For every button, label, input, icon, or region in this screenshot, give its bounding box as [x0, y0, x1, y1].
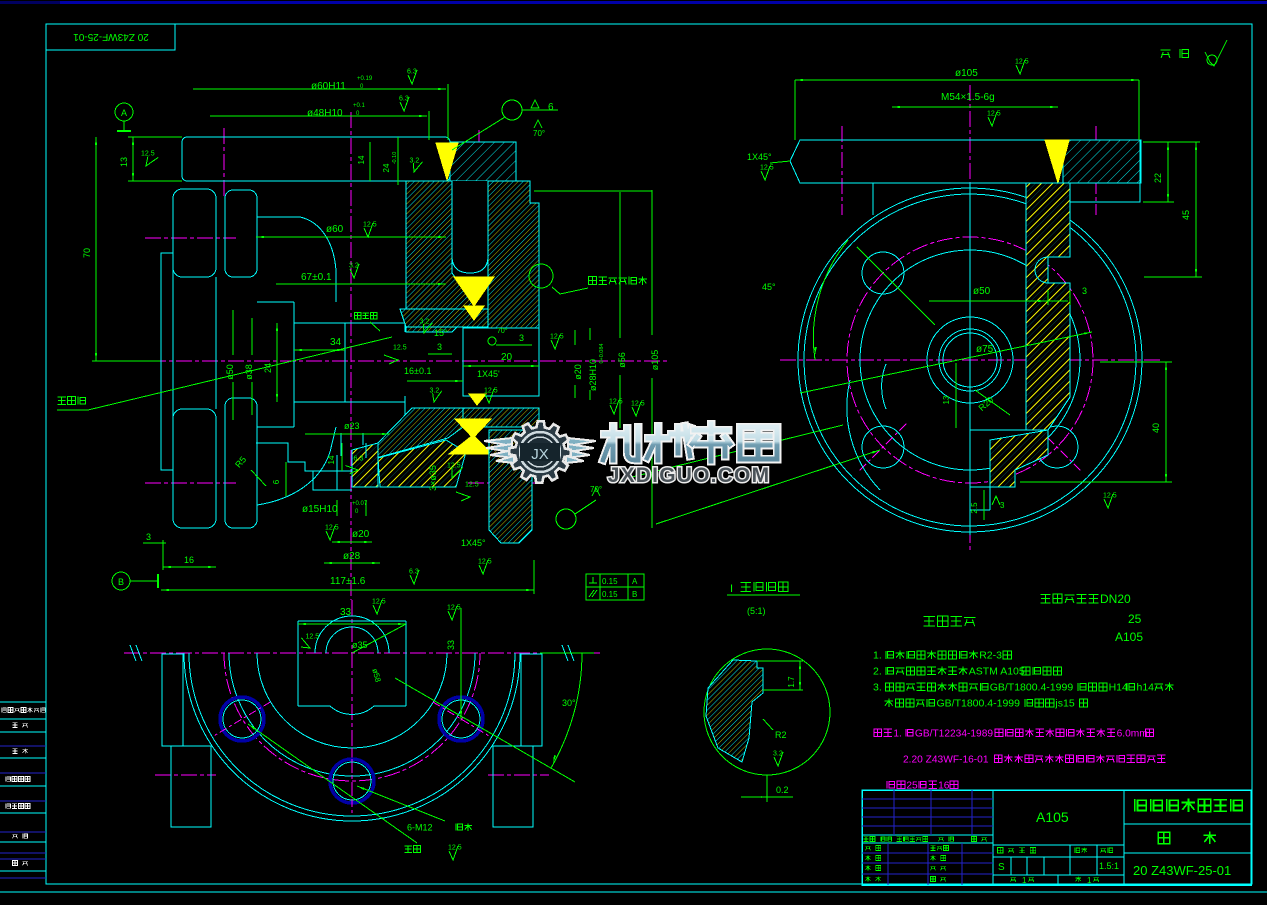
svg-text:14: 14 — [357, 155, 366, 164]
svg-text:16: 16 — [184, 555, 194, 565]
svg-text:15°: 15° — [434, 328, 448, 338]
svg-text:3: 3 — [519, 333, 524, 343]
svg-text:12.5: 12.5 — [550, 334, 564, 341]
svg-text:70°: 70° — [497, 327, 508, 335]
svg-text:JXDIGUO.COM: JXDIGUO.COM — [608, 464, 771, 487]
svg-text:12.5: 12.5 — [372, 599, 386, 606]
svg-text:20 Z43WF-25-01: 20 Z43WF-25-01 — [1133, 863, 1231, 878]
svg-text:40: 40 — [1151, 423, 1161, 433]
svg-text:12.5: 12.5 — [484, 388, 498, 395]
svg-text:A105: A105 — [1115, 630, 1143, 644]
svg-text:+0.084: +0.084 — [599, 344, 605, 361]
svg-text:14: 14 — [327, 455, 336, 464]
svg-text:GB/T12234-1989: GB/T12234-1989 — [915, 728, 993, 739]
svg-text:ø50: ø50 — [225, 364, 235, 380]
svg-text:6.3: 6.3 — [407, 69, 417, 76]
svg-text:js15: js15 — [1054, 698, 1074, 710]
svg-text:6: 6 — [272, 479, 281, 484]
svg-text:1: 1 — [1087, 876, 1092, 885]
svg-text:3: 3 — [1000, 501, 1005, 510]
svg-text:117±1.6: 117±1.6 — [330, 576, 366, 587]
svg-text:-0.10: -0.10 — [392, 152, 398, 165]
svg-text:2.5: 2.5 — [970, 502, 979, 514]
svg-text:2.20 Z43WF-16-01: 2.20 Z43WF-16-01 — [903, 754, 989, 765]
svg-text:ø20: ø20 — [573, 364, 583, 380]
svg-text:6.0mm: 6.0mm — [1117, 728, 1148, 739]
svg-text:6.3: 6.3 — [354, 456, 364, 463]
svg-text:3: 3 — [437, 342, 442, 352]
svg-text:6-M12: 6-M12 — [407, 822, 433, 832]
svg-text:12.5: 12.5 — [1103, 493, 1117, 500]
svg-text:25: 25 — [1128, 612, 1142, 626]
svg-text:12.5: 12.5 — [306, 634, 320, 641]
svg-text:ø48H10: ø48H10 — [307, 108, 343, 119]
svg-text:22: 22 — [1153, 173, 1163, 183]
svg-text:ø15H10: ø15H10 — [302, 504, 338, 515]
svg-text:33: 33 — [340, 607, 352, 618]
svg-text:3.2: 3.2 — [773, 751, 783, 758]
svg-text:30°: 30° — [562, 698, 576, 708]
svg-text:34: 34 — [330, 337, 342, 348]
svg-text:0.15: 0.15 — [602, 577, 618, 586]
svg-text:ø23: ø23 — [344, 421, 360, 431]
svg-text:12.5: 12.5 — [447, 463, 461, 470]
svg-text:12.5: 12.5 — [393, 345, 407, 352]
svg-text:ø20: ø20 — [352, 529, 370, 540]
svg-text:I: I — [730, 583, 733, 595]
svg-text:1.5:1: 1.5:1 — [1099, 861, 1119, 871]
svg-text:70: 70 — [82, 248, 92, 258]
svg-text:6.3: 6.3 — [409, 569, 419, 576]
svg-text:3.2: 3.2 — [410, 158, 420, 165]
svg-text:B: B — [118, 577, 124, 587]
svg-text:ø60: ø60 — [326, 224, 344, 235]
svg-text:+0.07: +0.07 — [352, 501, 368, 507]
svg-text:70°: 70° — [533, 129, 545, 138]
svg-text:ø60H11: ø60H11 — [311, 81, 346, 92]
svg-text:ø105: ø105 — [650, 350, 660, 371]
svg-text:0.2: 0.2 — [776, 785, 789, 795]
svg-text:GB/T1800.4-1999: GB/T1800.4-1999 — [990, 682, 1074, 694]
svg-text:3: 3 — [146, 532, 151, 542]
svg-text:12.5: 12.5 — [478, 559, 492, 566]
svg-text:JX: JX — [531, 446, 549, 463]
svg-text:1: 1 — [1022, 876, 1027, 885]
svg-text:3.2: 3.2 — [420, 319, 430, 326]
svg-text:70°: 70° — [590, 485, 602, 494]
svg-text:67±0.1: 67±0.1 — [301, 272, 332, 283]
svg-text:6.3: 6.3 — [399, 96, 409, 103]
svg-text:20 Z43WF-25-01: 20 Z43WF-25-01 — [73, 31, 149, 42]
svg-text:13: 13 — [119, 157, 129, 167]
svg-text:ASTM A105: ASTM A105 — [969, 666, 1025, 678]
svg-text:S: S — [998, 862, 1005, 873]
svg-text:33: 33 — [446, 640, 456, 650]
svg-text:ø105: ø105 — [955, 68, 978, 79]
svg-text:2.: 2. — [873, 666, 882, 678]
svg-text:M54×1.5-6g: M54×1.5-6g — [941, 92, 995, 103]
svg-text:3.2: 3.2 — [349, 263, 359, 270]
svg-text:ø50: ø50 — [973, 286, 991, 297]
svg-text:ø28H10: ø28H10 — [588, 359, 598, 391]
svg-text:GB/T1800.4-1999: GB/T1800.4-1999 — [937, 698, 1021, 710]
svg-text:12.5: 12.5 — [325, 525, 339, 532]
svg-text:1X45': 1X45' — [477, 369, 500, 379]
svg-text:1X45°: 1X45° — [747, 152, 772, 162]
svg-text:12.5: 12.5 — [631, 401, 645, 408]
svg-text:A: A — [121, 108, 127, 118]
svg-text:3.2: 3.2 — [430, 388, 440, 395]
svg-text:3: 3 — [1082, 286, 1087, 296]
svg-text:45°: 45° — [762, 282, 776, 292]
svg-text:45: 45 — [1181, 210, 1191, 220]
svg-text:B: B — [632, 590, 637, 599]
svg-text:12.5: 12.5 — [760, 165, 774, 172]
svg-text:13: 13 — [942, 395, 951, 404]
svg-text:+0.19: +0.19 — [357, 76, 373, 82]
svg-text:1X45°: 1X45° — [461, 538, 486, 548]
svg-text:R2: R2 — [775, 730, 787, 740]
svg-text:ø28: ø28 — [343, 551, 361, 562]
svg-text:3.: 3. — [873, 682, 882, 694]
svg-text:+0.1: +0.1 — [353, 103, 366, 109]
svg-text:12.5: 12.5 — [465, 482, 479, 489]
svg-text:12.5: 12.5 — [1015, 59, 1029, 66]
svg-text:h14: h14 — [1137, 682, 1155, 694]
svg-text:12.5: 12.5 — [448, 845, 462, 852]
svg-text:24: 24 — [382, 163, 391, 172]
svg-text:0: 0 — [599, 360, 605, 363]
svg-text:H14: H14 — [1109, 682, 1128, 694]
svg-text:12.5: 12.5 — [447, 605, 461, 612]
svg-text:(5:1): (5:1) — [747, 606, 766, 616]
svg-text:ø56: ø56 — [617, 352, 627, 368]
svg-text:12.5: 12.5 — [141, 151, 155, 158]
svg-text:1.: 1. — [873, 650, 882, 662]
svg-text:12.5: 12.5 — [609, 399, 623, 406]
svg-text:0.15: 0.15 — [602, 590, 618, 599]
svg-text:A: A — [632, 577, 638, 586]
svg-text:DN20: DN20 — [1100, 592, 1131, 606]
svg-text:12.5: 12.5 — [987, 111, 1001, 118]
svg-text:12.5: 12.5 — [363, 222, 377, 229]
svg-text:1.: 1. — [893, 728, 902, 739]
svg-text:A105: A105 — [1036, 809, 1069, 825]
svg-text:1.7: 1.7 — [787, 676, 796, 688]
svg-text:16±0.1: 16±0.1 — [404, 366, 431, 376]
svg-text:R2-3: R2-3 — [979, 650, 1002, 662]
svg-text:20: 20 — [501, 352, 513, 363]
svg-text:6: 6 — [548, 102, 554, 113]
svg-text:3×ø35: 3×ø35 — [428, 465, 438, 491]
